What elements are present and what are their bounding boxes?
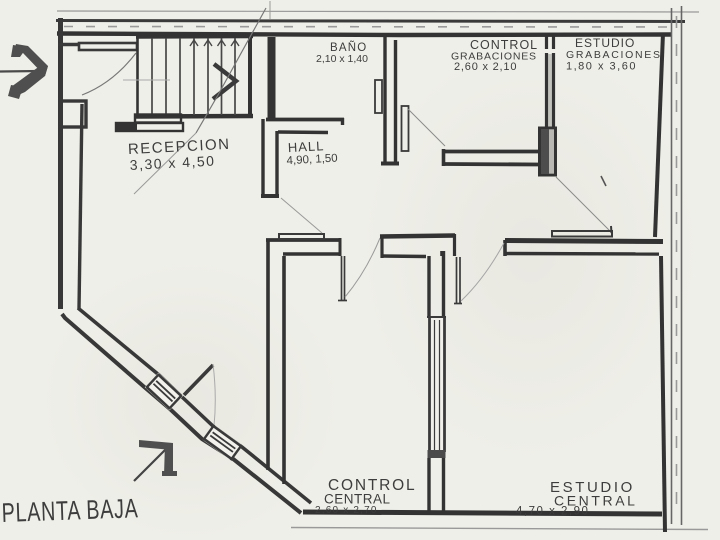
svg-text:4,70 x 2,90: 4,70 x 2,90 (516, 506, 589, 518)
svg-text:GRABACIONES: GRABACIONES (566, 49, 662, 61)
svg-text:1,80 x 3,60: 1,80 x 3,60 (566, 61, 637, 73)
svg-text:PLANTA BAJA: PLANTA BAJA (1, 494, 139, 528)
svg-text:2,10 x 1,40: 2,10 x 1,40 (316, 53, 368, 65)
svg-text:2,60 x 2,10: 2,60 x 2,10 (454, 61, 517, 73)
svg-text:2,60 x 2,70: 2,60 x 2,70 (315, 505, 378, 516)
svg-text:ESTUDIO: ESTUDIO (575, 36, 635, 50)
